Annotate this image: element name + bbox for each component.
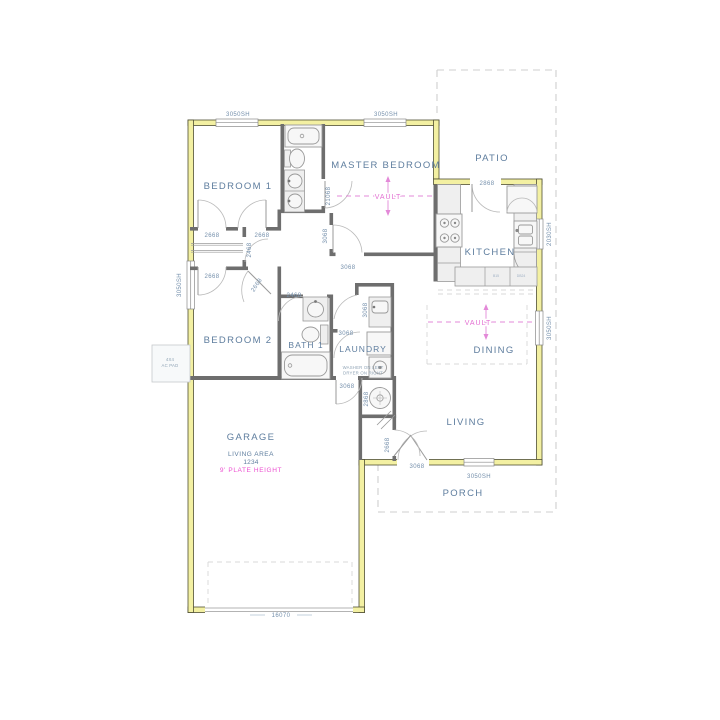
range xyxy=(436,214,462,247)
refrigerator xyxy=(507,186,537,213)
kitchen-fixtures xyxy=(436,185,537,287)
window-master-top xyxy=(364,119,406,127)
label-patio: PATIO xyxy=(475,153,509,164)
label-master-bedroom: MASTER BEDROOM xyxy=(331,160,441,171)
label-bedroom2: BEDROOM 2 xyxy=(204,335,273,346)
bath1-fixtures xyxy=(282,297,331,379)
window-label-bedroom2-left: 3050SH xyxy=(177,273,183,297)
door-label-bedroom1: 2668 xyxy=(205,233,220,239)
floor-plan: BEDROOM 1 MASTER BEDROOM PATIO KITCHEN D… xyxy=(0,0,720,720)
interior-walls xyxy=(188,124,438,461)
window-porch-front xyxy=(464,459,494,467)
label-kitchen: KITCHEN xyxy=(465,247,516,258)
label-dining: DINING xyxy=(473,345,514,356)
vault-dining-label: VAULT xyxy=(465,320,492,327)
window-label-dining-right: 3050SH xyxy=(547,316,553,340)
door-label-master-v: 3068 xyxy=(323,228,329,243)
window-label-master-top: 3050SH xyxy=(374,112,398,118)
cabinet-code-b: DB24 xyxy=(517,274,526,278)
door-label-entry-interior: 2668 xyxy=(385,437,391,452)
label-bath1: BATH 1 xyxy=(288,340,323,350)
window-label-bedroom1-top: 3050SH xyxy=(226,112,250,118)
label-porch: PORCH xyxy=(443,488,484,499)
laundry-note-1: WASHER ON LEFT xyxy=(343,365,384,370)
patio-porch-outline xyxy=(378,70,556,512)
window-bedroom1-top xyxy=(216,119,258,127)
water-heater xyxy=(370,388,391,409)
vault-master-label: VAULT xyxy=(375,194,402,201)
door-label-master-bath: 21068 xyxy=(326,186,332,205)
door-label-bath1: 2468 xyxy=(287,293,302,299)
ac-pad-label-2: AC PAD xyxy=(162,363,179,368)
label-laundry: LAUNDRY xyxy=(339,344,386,354)
door-label-utility-closet: 3068 xyxy=(363,302,369,317)
cabinet-code-a: B15 xyxy=(493,274,499,278)
master-bath-fixtures xyxy=(285,125,323,212)
living-area-value: 1234 xyxy=(243,459,258,466)
door-label-bedroom2: 2668 xyxy=(205,274,220,280)
door-label-patio: 2868 xyxy=(480,181,495,187)
living-area-label: LIVING AREA xyxy=(228,451,274,458)
door-label-hall-closet-top: 2668 xyxy=(255,233,270,239)
label-living: LIVING xyxy=(447,417,486,428)
door-label-front: 3068 xyxy=(410,464,425,470)
window-dining-right xyxy=(536,311,544,345)
door-label-garage-overhead: 16070 xyxy=(272,613,291,619)
laundry-note-2: DRYER ON RIGHT xyxy=(343,371,383,376)
door-label-laundry-garage: 3068 xyxy=(340,384,355,390)
door-label-hall-closet-side: 2468 xyxy=(247,242,253,257)
label-garage: GARAGE xyxy=(227,432,275,443)
door-label-master-h: 3068 xyxy=(341,265,356,271)
label-bedroom1: BEDROOM 1 xyxy=(204,181,273,192)
door-label-water-heater: 2868 xyxy=(364,391,370,406)
window-label-kitchen-right: 2030SH xyxy=(547,222,553,246)
garage-door-dashed xyxy=(208,562,352,606)
window-label-porch-front: 3050SH xyxy=(467,474,491,480)
kitchen-sink xyxy=(514,221,537,248)
plate-height-label: 9' PLATE HEIGHT xyxy=(220,467,282,474)
windows xyxy=(187,119,543,466)
door-label-laundry: 3068 xyxy=(339,331,354,337)
counter-overhang-dashed xyxy=(438,290,537,294)
ac-pad-label-1: 4X4 xyxy=(166,357,175,362)
